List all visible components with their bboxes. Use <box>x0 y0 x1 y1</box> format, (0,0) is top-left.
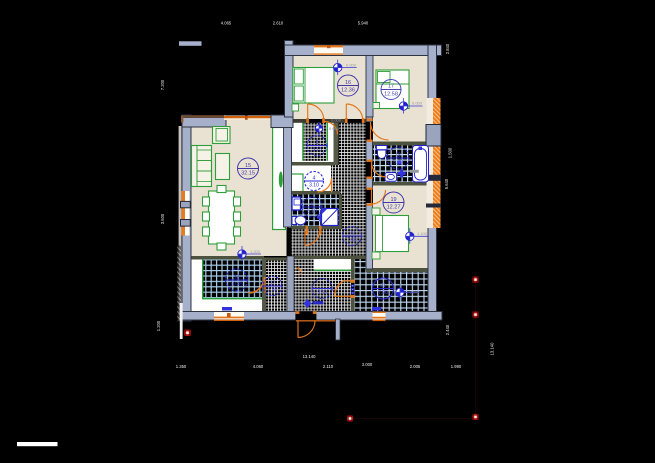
svg-text:3.15: 3.15 <box>312 147 322 153</box>
svg-text:19: 19 <box>390 197 396 203</box>
svg-text:9.50: 9.50 <box>317 290 327 296</box>
svg-text:3.000: 3.000 <box>362 362 373 367</box>
svg-text:17: 17 <box>388 84 394 90</box>
svg-text:2.610: 2.610 <box>273 21 284 26</box>
svg-text:0.000: 0.000 <box>313 300 324 305</box>
svg-text:13.140: 13.140 <box>303 354 316 359</box>
svg-text:2.840: 2.840 <box>445 43 450 54</box>
svg-text:5.40: 5.40 <box>393 160 403 166</box>
svg-text:0.000: 0.000 <box>329 126 340 131</box>
svg-text:6: 6 <box>311 202 314 208</box>
svg-text:12.58: 12.58 <box>384 92 398 98</box>
svg-text:1.990: 1.990 <box>451 364 462 369</box>
svg-text:5.10: 5.10 <box>307 209 317 215</box>
svg-text:0.000: 0.000 <box>412 101 423 106</box>
svg-text:32.15: 32.15 <box>241 171 255 177</box>
svg-text:1.100: 1.100 <box>417 231 428 236</box>
svg-text:7: 7 <box>321 283 324 289</box>
svg-text:12.36: 12.36 <box>341 88 355 94</box>
svg-text:1.200: 1.200 <box>156 320 161 331</box>
svg-text:2.440: 2.440 <box>445 324 450 335</box>
svg-text:5: 5 <box>316 140 319 146</box>
svg-text:4: 4 <box>313 176 316 182</box>
svg-text:12: 12 <box>270 281 276 287</box>
svg-text:5.940: 5.940 <box>358 21 369 26</box>
svg-text:12.27: 12.27 <box>387 205 401 211</box>
svg-text:5.640: 5.640 <box>444 178 449 189</box>
svg-text:7.88: 7.88 <box>347 238 357 244</box>
svg-text:3.10: 3.10 <box>309 183 319 189</box>
svg-text:4.065: 4.065 <box>221 21 232 26</box>
svg-text:2.80: 2.80 <box>268 288 278 294</box>
svg-text:13.140: 13.140 <box>490 342 495 355</box>
svg-text:1.500: 1.500 <box>448 147 453 158</box>
svg-text:0.000: 0.000 <box>331 118 342 123</box>
svg-text:0.000: 0.000 <box>346 63 357 68</box>
svg-text:20: 20 <box>349 231 355 237</box>
svg-text:3.600: 3.600 <box>160 213 165 224</box>
svg-text:13: 13 <box>234 275 240 281</box>
svg-text:10.45: 10.45 <box>230 282 243 288</box>
svg-text:7.90: 7.90 <box>378 290 388 296</box>
svg-text:7.200: 7.200 <box>160 79 165 90</box>
svg-text:16: 16 <box>345 80 351 86</box>
svg-text:1.350: 1.350 <box>176 364 187 369</box>
svg-text:0.000: 0.000 <box>410 290 421 295</box>
svg-text:15: 15 <box>245 163 251 169</box>
svg-text:2.110: 2.110 <box>323 364 334 369</box>
svg-text:21: 21 <box>380 283 386 289</box>
svg-text:18: 18 <box>395 153 401 159</box>
svg-text:4.060: 4.060 <box>253 364 264 369</box>
svg-text:2.005: 2.005 <box>410 364 421 369</box>
svg-text:1.200: 1.200 <box>250 249 261 254</box>
